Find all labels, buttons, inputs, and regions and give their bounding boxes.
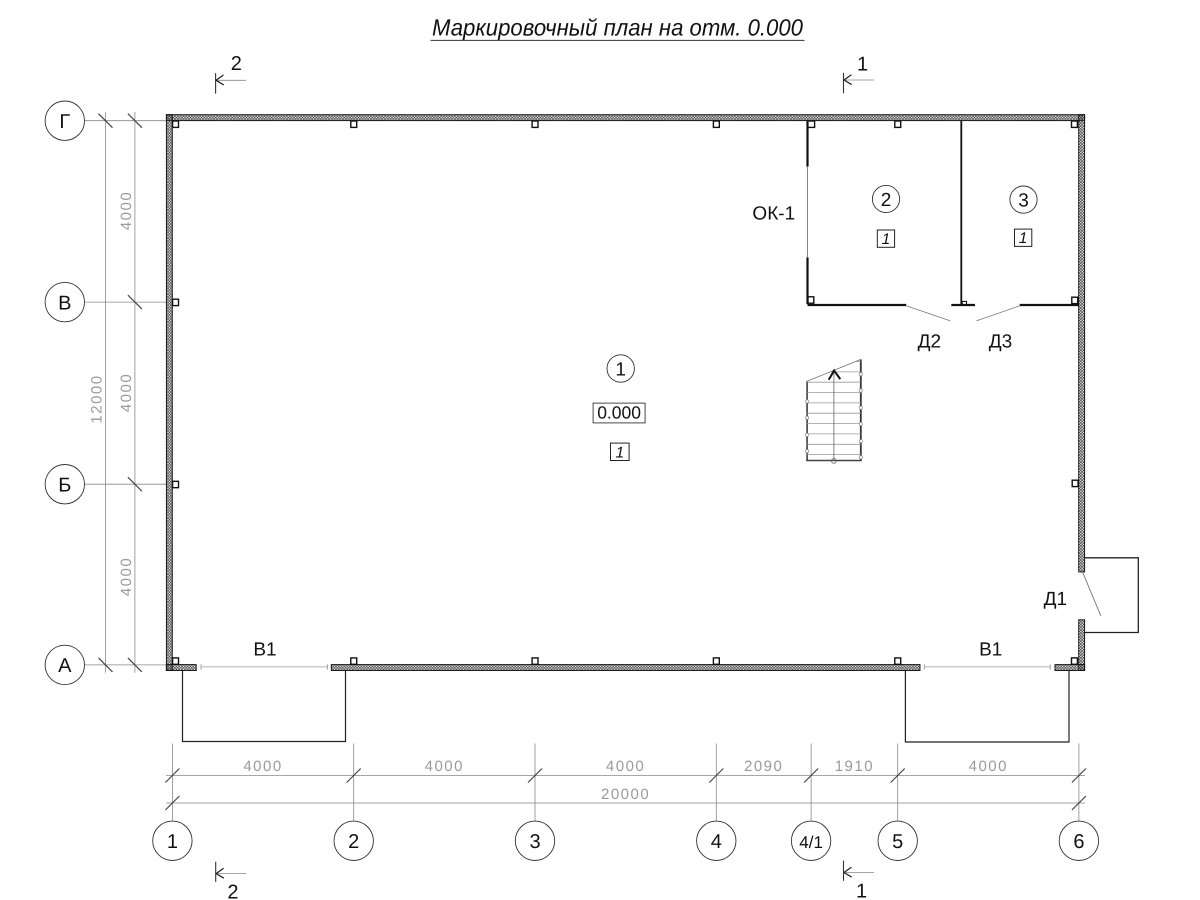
svg-text:Б: Б <box>58 474 71 496</box>
svg-text:В: В <box>58 292 71 314</box>
svg-text:В1: В1 <box>979 640 1002 661</box>
svg-text:Д3: Д3 <box>989 332 1012 353</box>
svg-text:5: 5 <box>892 831 903 853</box>
svg-text:2: 2 <box>348 831 359 853</box>
svg-text:Маркировочный план на отм. 0.0: Маркировочный план на отм. 0.000 <box>432 15 803 41</box>
svg-text:Г: Г <box>59 111 70 133</box>
svg-text:Д2: Д2 <box>918 332 941 353</box>
svg-text:6: 6 <box>1073 831 1084 853</box>
svg-text:1: 1 <box>857 54 868 76</box>
svg-text:А: А <box>58 655 72 677</box>
svg-text:Д1: Д1 <box>1044 589 1067 610</box>
svg-text:1: 1 <box>615 444 624 461</box>
svg-text:ОК-1: ОК-1 <box>752 204 795 225</box>
svg-text:1: 1 <box>1019 230 1028 247</box>
svg-text:4000: 4000 <box>118 191 135 230</box>
svg-text:4000: 4000 <box>425 758 464 775</box>
svg-text:4000: 4000 <box>606 758 645 775</box>
svg-text:4/1: 4/1 <box>799 833 823 852</box>
svg-text:3: 3 <box>529 831 540 853</box>
svg-text:2: 2 <box>231 53 242 75</box>
svg-text:1: 1 <box>615 359 626 380</box>
svg-text:12000: 12000 <box>89 374 106 423</box>
svg-text:4000: 4000 <box>118 557 135 596</box>
svg-text:2090: 2090 <box>744 758 783 775</box>
svg-text:1: 1 <box>167 831 178 853</box>
svg-text:4000: 4000 <box>969 758 1008 775</box>
svg-text:2: 2 <box>227 882 238 900</box>
svg-text:1: 1 <box>856 881 867 900</box>
svg-text:4000: 4000 <box>118 373 135 412</box>
svg-text:3: 3 <box>1018 191 1029 212</box>
svg-text:1910: 1910 <box>835 758 874 775</box>
svg-text:0.000: 0.000 <box>597 402 641 422</box>
svg-text:4000: 4000 <box>243 758 282 775</box>
svg-text:2: 2 <box>881 190 892 211</box>
svg-text:1: 1 <box>882 231 891 248</box>
svg-text:В1: В1 <box>253 640 276 661</box>
svg-text:4: 4 <box>711 831 722 853</box>
svg-text:20000: 20000 <box>601 786 650 803</box>
